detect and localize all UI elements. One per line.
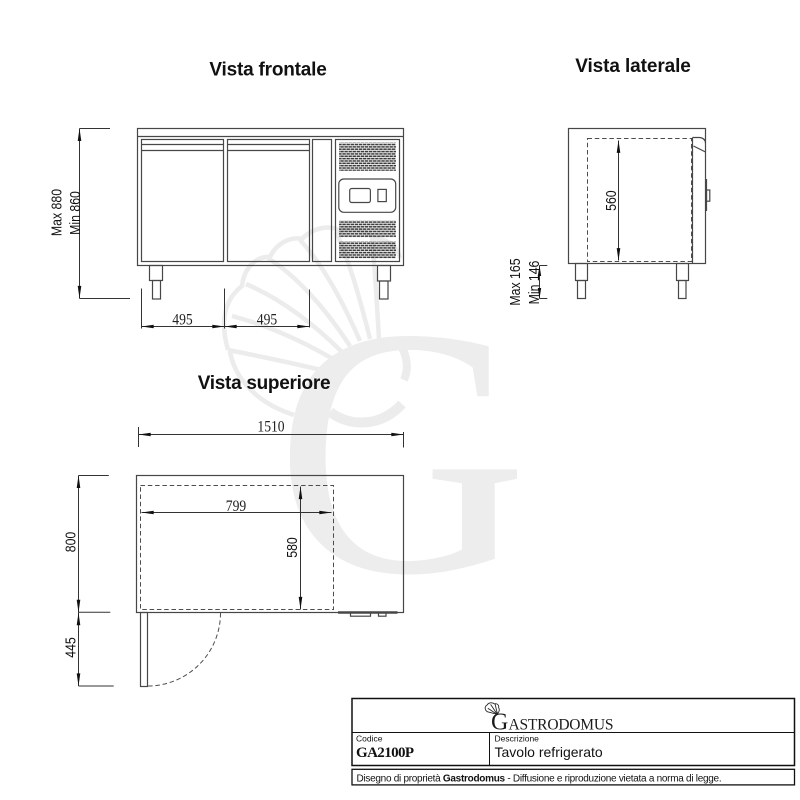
svg-text:Tavolo refrigerato: Tavolo refrigerato [495,744,603,760]
svg-text:580: 580 [284,537,300,558]
svg-text:Descrizione: Descrizione [495,734,540,744]
svg-text:445: 445 [62,637,78,658]
svg-text:Min 860: Min 860 [67,191,83,235]
svg-text:Vista frontale: Vista frontale [209,60,326,81]
svg-text:799: 799 [226,498,246,515]
svg-text:800: 800 [62,531,78,552]
svg-text:G: G [491,710,508,736]
svg-text:560: 560 [603,190,619,211]
svg-text:Vista laterale: Vista laterale [575,56,691,77]
svg-text:Codice: Codice [356,734,383,744]
svg-text:495: 495 [172,312,192,329]
svg-text:GA2100P: GA2100P [356,745,414,761]
svg-text:Max 880: Max 880 [48,189,64,236]
svg-text:495: 495 [257,312,277,329]
svg-text:Vista superiore: Vista superiore [198,373,330,394]
svg-text:ASTRODOMUS: ASTRODOMUS [509,716,614,733]
svg-text:Disegno di proprietà Gastrodom: Disegno di proprietà Gastrodomus - Diffu… [357,773,722,784]
svg-text:Min 146: Min 146 [526,260,542,304]
svg-text:G: G [276,256,529,649]
svg-text:1510: 1510 [257,419,284,436]
svg-text:Max 165: Max 165 [507,258,523,305]
